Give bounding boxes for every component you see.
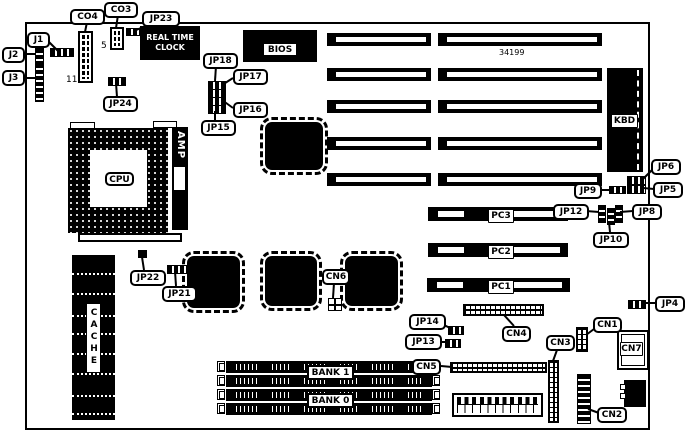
cn6-callout: CN6 bbox=[322, 269, 350, 285]
rtc-label-line1: REAL TIME bbox=[140, 33, 200, 43]
j3-callout: J3 bbox=[2, 70, 25, 86]
power-sockets-row bbox=[457, 404, 538, 413]
cache-chip-separator bbox=[72, 413, 115, 415]
bank1-label: BANK 1 bbox=[307, 365, 354, 380]
jp5-jumper bbox=[627, 185, 646, 194]
cache-chip-separator bbox=[72, 273, 115, 275]
cn1-callout: CN1 bbox=[593, 317, 622, 333]
cn2-header bbox=[577, 374, 591, 424]
pc2-label: PC2 bbox=[488, 245, 514, 259]
co4-pin-number: 11 bbox=[66, 75, 77, 85]
rtc-chip: REAL TIME CLOCK bbox=[140, 26, 200, 60]
cn4-header bbox=[463, 304, 544, 316]
jp18-callout: JP18 bbox=[203, 53, 238, 69]
jp22-jumper bbox=[138, 250, 147, 258]
pc1-label: PC1 bbox=[488, 280, 514, 294]
cn5-header bbox=[450, 362, 547, 373]
jp21-callout: JP21 bbox=[162, 286, 197, 302]
cn3-callout: CN3 bbox=[546, 335, 575, 351]
power-connector bbox=[452, 393, 543, 417]
cache-chip-separator bbox=[72, 293, 115, 295]
isa-slot bbox=[327, 33, 431, 46]
cache-chip-separator bbox=[72, 395, 115, 397]
amp-label: AMP bbox=[175, 131, 186, 159]
jp5-callout: JP5 bbox=[653, 182, 683, 198]
pc3-label: PC3 bbox=[488, 209, 514, 223]
cn3-header bbox=[548, 360, 559, 423]
jp23-jumper bbox=[126, 28, 140, 36]
amp-regulator: AMP bbox=[172, 127, 188, 230]
external-port-clip bbox=[620, 393, 626, 399]
simm-clip bbox=[432, 389, 440, 400]
external-port-clip bbox=[620, 384, 626, 390]
isa-slot bbox=[327, 173, 431, 186]
cn6-connector bbox=[328, 298, 342, 311]
jp12-jumper bbox=[598, 205, 606, 223]
isa-slot bbox=[438, 137, 602, 150]
simm-clip bbox=[217, 403, 225, 414]
jp14-jumper bbox=[448, 326, 464, 335]
cpu-label: CPU bbox=[105, 172, 134, 186]
simm-clip bbox=[217, 361, 225, 372]
co4-pins-col1 bbox=[82, 35, 85, 79]
j1-connector bbox=[50, 48, 74, 57]
jp4-jumper bbox=[628, 300, 646, 309]
co4-pins-col2 bbox=[87, 35, 90, 79]
part-number: 34199 bbox=[499, 48, 524, 57]
simm-clip bbox=[217, 389, 225, 400]
simm-clip bbox=[217, 375, 225, 386]
jp15-jumper bbox=[208, 105, 226, 114]
jp21-jumper bbox=[167, 265, 187, 274]
jp10-callout: JP10 bbox=[593, 232, 629, 248]
jp6-callout: JP6 bbox=[651, 159, 681, 175]
jp24-callout: JP24 bbox=[103, 96, 138, 112]
qfp-chip bbox=[345, 256, 398, 306]
jp15-callout: JP15 bbox=[201, 120, 236, 136]
isa-slot bbox=[327, 100, 431, 113]
external-port bbox=[624, 380, 646, 407]
isa-slot bbox=[438, 33, 602, 46]
amp-inset bbox=[174, 167, 185, 190]
jp8-callout: JP8 bbox=[632, 204, 662, 220]
motherboard-diagram: 11 5 REAL TIME CLOCK BIOS CPU AMP 34199 bbox=[0, 0, 685, 434]
cn5-callout: CN5 bbox=[412, 359, 441, 375]
jp23-callout: JP23 bbox=[142, 11, 180, 27]
simm-clip bbox=[432, 403, 440, 414]
cn2-callout: CN2 bbox=[597, 407, 627, 423]
jp13-callout: JP13 bbox=[405, 334, 442, 350]
jp12-callout: JP12 bbox=[553, 204, 589, 220]
bios-label: BIOS bbox=[263, 43, 297, 56]
cache-chip-separator bbox=[72, 373, 115, 375]
kbd-label: KBD bbox=[611, 114, 638, 128]
j2-callout: J2 bbox=[2, 47, 25, 63]
simm-clip bbox=[432, 375, 440, 386]
cn4-callout: CN4 bbox=[502, 326, 531, 342]
cpu-socket-tab-right bbox=[153, 121, 177, 128]
co3-pins-col1 bbox=[114, 31, 116, 46]
co3-connector bbox=[110, 27, 124, 50]
jp4-callout: JP4 bbox=[655, 296, 685, 312]
jp24-jumper bbox=[108, 77, 126, 86]
co4-connector bbox=[78, 31, 93, 83]
co3-pins-col2 bbox=[118, 31, 120, 46]
cn1-header bbox=[576, 327, 588, 352]
jp22-callout: JP22 bbox=[130, 270, 166, 286]
co3-callout: CO3 bbox=[104, 2, 138, 18]
cpu-socket-tab-left bbox=[70, 122, 95, 129]
jp9-jumper bbox=[609, 186, 626, 194]
co3-pin-number: 5 bbox=[101, 41, 107, 51]
jp14-callout: JP14 bbox=[409, 314, 446, 330]
jp10-jumper bbox=[607, 208, 615, 225]
jp8-jumper bbox=[615, 205, 623, 223]
qfp-chip bbox=[265, 256, 317, 306]
qfp-chip bbox=[265, 122, 323, 170]
isa-slot bbox=[327, 137, 431, 150]
jp13-jumper bbox=[445, 339, 461, 348]
j3-connector bbox=[35, 63, 44, 102]
jp9-callout: JP9 bbox=[574, 183, 602, 199]
jp17-callout: JP17 bbox=[233, 69, 268, 85]
j1-callout: J1 bbox=[27, 32, 50, 48]
j2-connector bbox=[35, 48, 44, 64]
jp16-callout: JP16 bbox=[233, 102, 268, 118]
cn7-label: CN7 bbox=[620, 342, 643, 356]
cpu-socket-lever bbox=[78, 233, 182, 242]
bank0-label: BANK 0 bbox=[307, 393, 354, 408]
isa-slot bbox=[438, 68, 602, 81]
cache-label: CACHE bbox=[86, 303, 101, 373]
co4-callout: CO4 bbox=[70, 9, 105, 25]
isa-slot bbox=[438, 100, 602, 113]
rtc-label-line2: CLOCK bbox=[140, 43, 200, 53]
jp6-jumper bbox=[627, 176, 646, 185]
isa-slot bbox=[327, 68, 431, 81]
